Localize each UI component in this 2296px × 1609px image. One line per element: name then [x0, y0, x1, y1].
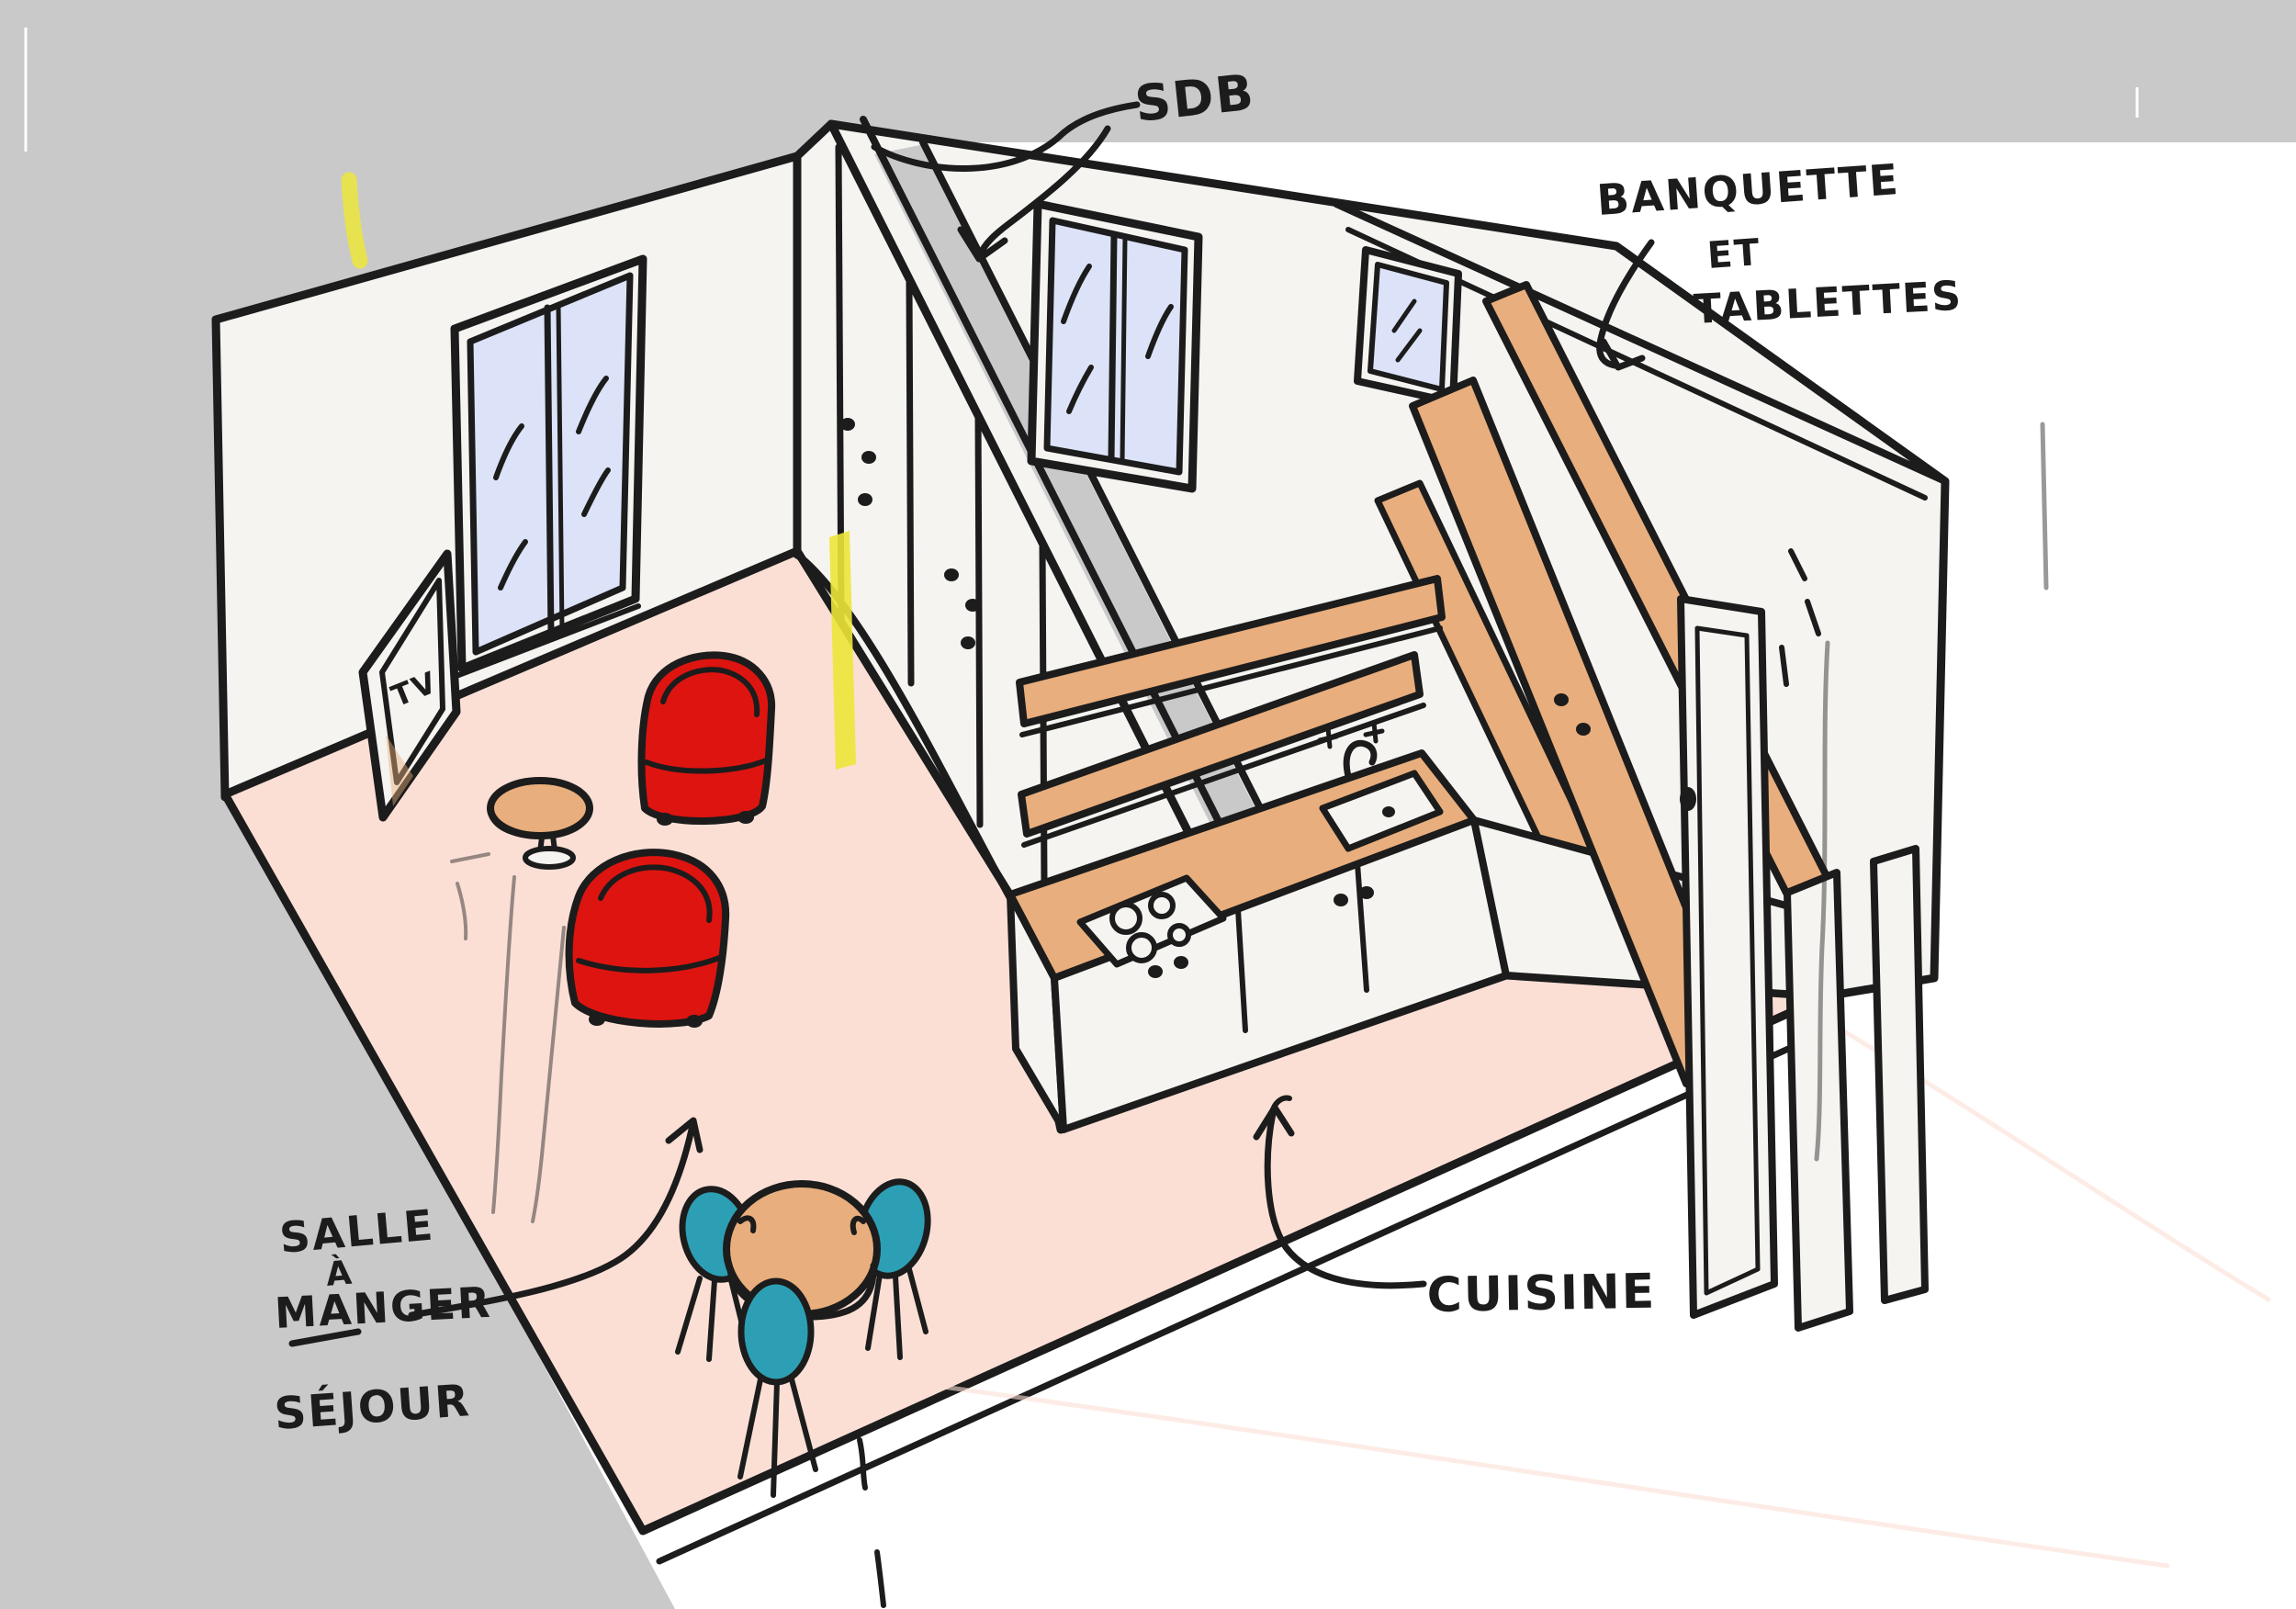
- burner-4: [1170, 926, 1188, 944]
- armchair-1-foot-2: [737, 811, 754, 824]
- armchair-2-foot-2: [686, 1015, 703, 1028]
- door-panel: [1681, 599, 1774, 1315]
- closet-knob-5: [965, 599, 980, 612]
- door-handle: [1680, 787, 1696, 811]
- armchair-2-body: [569, 852, 726, 1024]
- burner-1: [1112, 905, 1140, 932]
- small-window: [1357, 250, 1458, 402]
- label-banquette-line2: ET: [1705, 231, 1762, 277]
- burner-3: [1129, 935, 1154, 961]
- closet-door-seam-3: [978, 415, 980, 825]
- armchair-1: [642, 655, 772, 826]
- dining-chair-front: [741, 1281, 811, 1382]
- burner-2: [1151, 895, 1173, 917]
- small-window-glass: [1370, 264, 1446, 389]
- bathroom-window-mullion-2: [1122, 237, 1125, 461]
- closet-knob-2: [861, 451, 876, 464]
- cabinet-knob-2: [1174, 956, 1188, 969]
- bathroom-window: [1031, 204, 1199, 489]
- cabinet-knob-3: [1334, 894, 1348, 906]
- side-table-base: [525, 849, 573, 867]
- window-mullion: [547, 308, 551, 636]
- apartment-sketch: TV: [0, 0, 2296, 1609]
- living-room-window: [455, 259, 643, 676]
- banquette-post-2: [1874, 849, 1925, 1300]
- armchair-2-foot-1: [589, 1013, 605, 1026]
- banquette-knob-1: [1554, 693, 1569, 706]
- closet-knob-6: [961, 636, 975, 649]
- cabinet-knob-4: [1359, 886, 1374, 899]
- armchair-1-body: [642, 655, 772, 821]
- banquette-knob-2: [1576, 723, 1591, 736]
- closet-knob-1: [840, 418, 855, 431]
- armchair-2: [569, 852, 726, 1028]
- bathroom-window-mullion: [1111, 235, 1114, 459]
- closet-door-seam-2: [909, 283, 911, 683]
- armchair-1-foot-1: [657, 813, 673, 826]
- sketch-canvas: TV: [0, 0, 2296, 1609]
- closet-knob-4: [944, 568, 959, 581]
- label-kitchen: CUISINE: [1426, 1265, 1657, 1323]
- closet-knob-3: [858, 493, 872, 506]
- cabinet-knob-1: [1148, 965, 1163, 978]
- sink-drain: [1382, 806, 1395, 817]
